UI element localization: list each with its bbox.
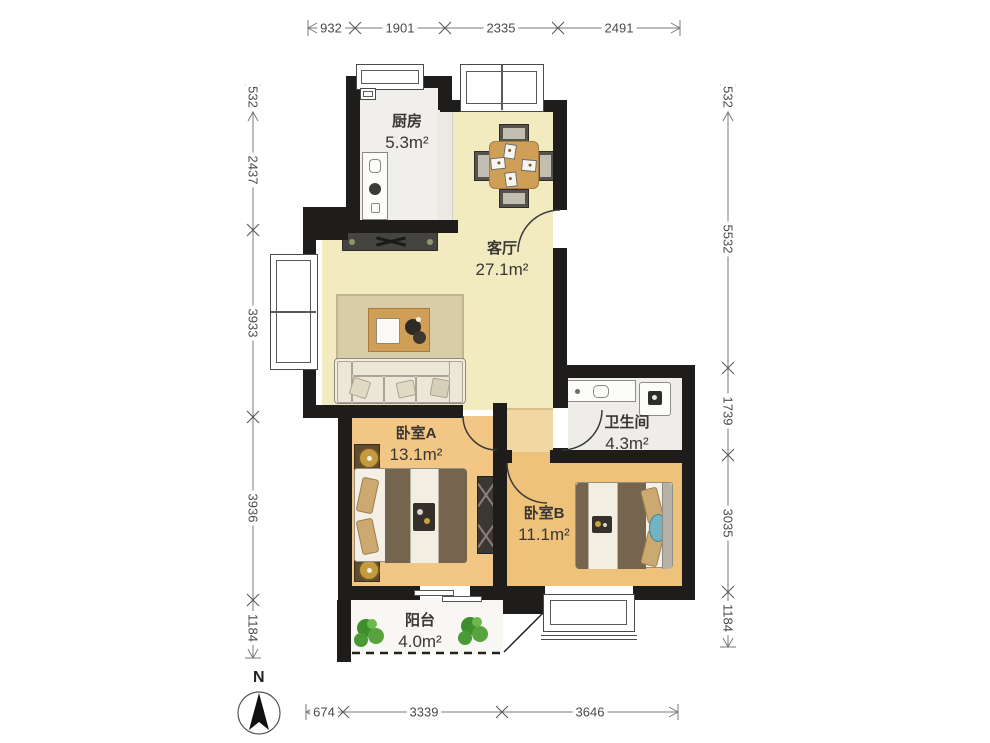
bedroom-a-area: 13.1m² xyxy=(366,444,466,465)
living-bay-window xyxy=(270,254,318,370)
sofa-pillow xyxy=(430,378,451,399)
sofa xyxy=(334,358,466,404)
dining-chair-bottom xyxy=(499,189,529,208)
wall-kitchen-left xyxy=(346,76,360,222)
dim-right-1: 532 xyxy=(721,83,736,111)
dining-bay-window xyxy=(460,64,544,112)
living-label: 客厅 27.1m² xyxy=(452,240,552,280)
bathroom-area: 4.3m² xyxy=(577,433,677,454)
dim-left-3: 3933 xyxy=(246,306,261,341)
wall-tv xyxy=(338,220,458,233)
wall-beda-top-right xyxy=(497,405,507,418)
tray xyxy=(376,318,400,344)
sink-icon xyxy=(369,159,381,173)
balcony-area: 4.0m² xyxy=(370,631,470,652)
bedroom-b-area: 11.1m² xyxy=(494,524,594,545)
floorplan-canvas: 厨房 5.3m² 客厅 27.1m² 卧室A 13.1m² 卫生间 4.3m² … xyxy=(0,0,990,743)
sliding-door-panel xyxy=(442,596,482,602)
dim-right-5: 1184 xyxy=(721,601,736,635)
coffee-table xyxy=(368,308,430,352)
dining-table xyxy=(489,141,539,189)
bed-tray xyxy=(592,516,612,533)
bedroom-a-name: 卧室A xyxy=(366,425,466,444)
kitchen-area: 5.3m² xyxy=(365,132,449,153)
decor-dot xyxy=(427,239,433,245)
bedroom-b-label: 卧室B 11.1m² xyxy=(494,505,594,545)
bathroom-name: 卫生间 xyxy=(577,414,677,433)
living-area: 27.1m² xyxy=(452,259,552,280)
wardrobe xyxy=(477,476,494,554)
faucet-dot xyxy=(575,389,580,394)
living-name: 客厅 xyxy=(452,240,552,259)
dim-right-2: 5532 xyxy=(721,222,736,257)
kitchen-label: 厨房 5.3m² xyxy=(365,113,449,153)
kitchen-window xyxy=(356,64,424,90)
dim-top-3: 2335 xyxy=(484,21,519,36)
wall-beda-bottom-left xyxy=(338,586,420,600)
dim-left-2: 2437 xyxy=(246,153,261,188)
sink-icon xyxy=(593,385,609,398)
bed-tray xyxy=(413,503,435,531)
balcony-name: 阳台 xyxy=(370,612,470,631)
wall-right-outer xyxy=(682,365,695,600)
cup-dot xyxy=(416,317,421,322)
wall-bath-left-upper xyxy=(553,378,568,408)
dim-top-4: 2491 xyxy=(602,21,637,36)
bay-window-sill xyxy=(541,635,637,640)
flue-box xyxy=(360,88,376,100)
lamp-icon xyxy=(358,559,380,581)
wall-divider-ab xyxy=(493,403,507,600)
jar-icon xyxy=(371,203,380,213)
wall-right-upper xyxy=(553,100,567,210)
dim-left-5: 1184 xyxy=(246,611,261,645)
dim-bottom-3: 3646 xyxy=(573,705,608,720)
bedroom-a-label: 卧室A 13.1m² xyxy=(366,425,466,465)
decor-dot xyxy=(349,239,355,245)
kitchen-name: 厨房 xyxy=(365,113,449,132)
balcony-label: 阳台 4.0m² xyxy=(370,612,470,652)
washer-dot xyxy=(652,395,657,400)
placemat xyxy=(504,171,518,187)
balcony-diagonal xyxy=(504,613,543,652)
placemat xyxy=(503,143,517,160)
wall-beda-left xyxy=(338,405,352,600)
washing-machine xyxy=(639,382,671,416)
north-label: N xyxy=(253,669,265,687)
sofa-armrest-left xyxy=(337,361,352,403)
dim-right-4: 3035 xyxy=(721,506,736,541)
dim-top-2: 1901 xyxy=(383,21,418,36)
dim-left-1: 532 xyxy=(246,83,261,111)
wall-left-outer-lower xyxy=(303,368,316,418)
corridor-floor xyxy=(507,408,553,452)
pillow xyxy=(356,477,380,515)
bed-a xyxy=(354,468,466,562)
placemat xyxy=(521,159,537,172)
dim-bottom-2: 3339 xyxy=(407,705,442,720)
dim-right-3: 1739 xyxy=(721,394,736,429)
tv-console xyxy=(342,231,438,251)
headboard xyxy=(662,483,672,569)
kettle-icon xyxy=(413,331,426,344)
compass-icon xyxy=(238,692,280,734)
kitchen-counter xyxy=(362,152,388,220)
dim-top-1: 932 xyxy=(317,21,345,36)
bathroom-label: 卫生间 4.3m² xyxy=(577,414,677,454)
wall-bedb-bottom-right xyxy=(633,586,695,600)
stove-burner-icon xyxy=(369,183,381,195)
wall-living-bottom xyxy=(303,405,463,418)
bedroom-b-name: 卧室B xyxy=(494,505,594,524)
dim-bottom-1: 674 xyxy=(310,705,338,720)
wall-balcony-left xyxy=(337,600,351,662)
wall-bath-top xyxy=(553,365,695,378)
pillow xyxy=(356,518,380,556)
bath-counter xyxy=(566,380,636,402)
wall-right-mid xyxy=(553,248,567,378)
placemat xyxy=(490,157,506,171)
sofa-back xyxy=(352,361,450,376)
sofa-armrest-right xyxy=(448,361,463,403)
bedroom-b-bay-window xyxy=(543,594,635,632)
dim-left-4: 3936 xyxy=(246,491,261,526)
wall-balcony-right-chunk xyxy=(503,586,545,614)
